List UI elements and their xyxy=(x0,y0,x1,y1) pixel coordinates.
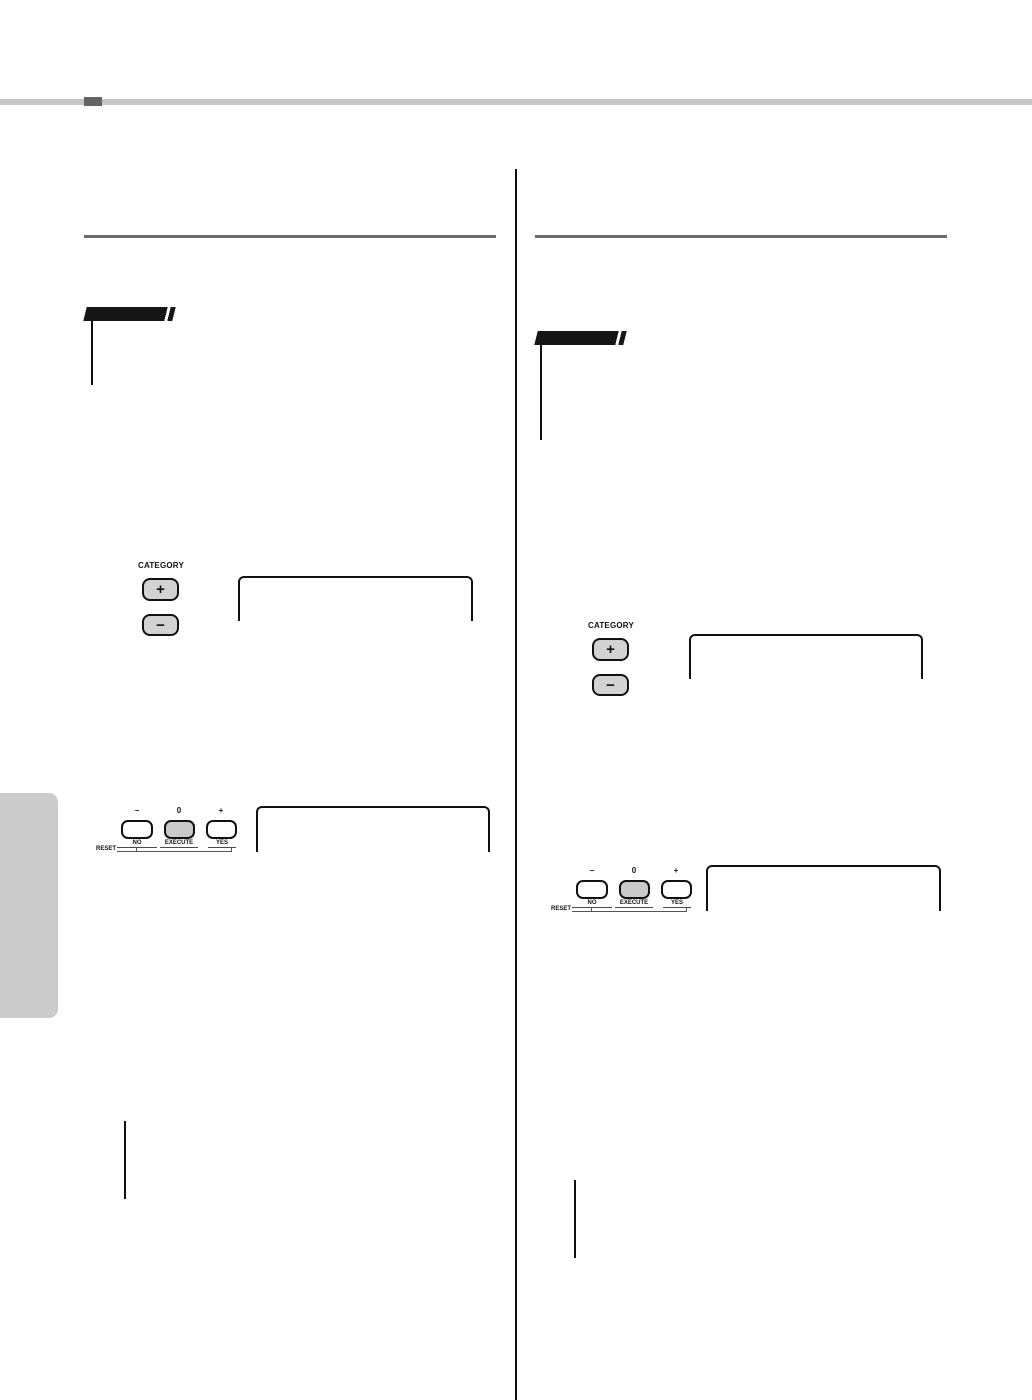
display-box xyxy=(689,634,923,679)
header-accent-square xyxy=(84,97,102,106)
section-rule xyxy=(84,235,496,238)
category-label: CATEGORY xyxy=(137,561,185,570)
yes-label: YES xyxy=(208,839,236,848)
note-banner xyxy=(534,331,626,345)
indent-bar xyxy=(124,1121,126,1199)
minus-label: − xyxy=(127,807,147,815)
minus-icon: − xyxy=(606,678,615,693)
note-stem-line xyxy=(91,321,93,385)
display-box xyxy=(238,576,473,621)
execute-button xyxy=(619,880,650,899)
value-button-group: − 0 + NO EXECUTE YES RESET xyxy=(551,866,701,914)
reset-connector-line xyxy=(572,911,687,912)
category-minus-button: − xyxy=(592,674,629,696)
category-label: CATEGORY xyxy=(587,621,635,630)
plus-label: + xyxy=(666,867,686,875)
category-minus-button: − xyxy=(142,614,179,636)
plus-icon: + xyxy=(156,582,165,597)
yes-button xyxy=(661,880,692,899)
reset-label: RESET xyxy=(96,846,118,852)
no-button xyxy=(121,820,153,839)
plus-label: + xyxy=(211,807,231,815)
reset-tick xyxy=(136,848,137,852)
reset-tick xyxy=(591,908,592,912)
minus-label: − xyxy=(582,867,602,875)
category-plus-button: + xyxy=(592,638,629,661)
reset-connector-line xyxy=(117,851,232,852)
minus-icon: − xyxy=(156,618,165,633)
yes-label: YES xyxy=(663,899,691,908)
display-box xyxy=(706,865,941,911)
column-divider xyxy=(515,169,517,1400)
no-label: NO xyxy=(572,899,612,908)
category-plus-button: + xyxy=(142,578,179,601)
category-button-group: CATEGORY + − xyxy=(587,620,697,702)
execute-label: EXECUTE xyxy=(160,839,198,848)
reset-tick xyxy=(231,848,232,852)
yes-button xyxy=(206,820,237,839)
no-label: NO xyxy=(117,839,157,848)
note-stem-line xyxy=(540,345,542,440)
plus-icon: + xyxy=(606,642,615,657)
page-header-bar xyxy=(0,99,1032,105)
section-rule xyxy=(535,235,947,238)
page-edge-tab xyxy=(0,793,58,1018)
note-banner xyxy=(83,307,175,321)
zero-label: 0 xyxy=(169,807,189,815)
indent-bar xyxy=(574,1180,576,1258)
display-box xyxy=(256,806,490,852)
no-button xyxy=(576,880,608,899)
zero-label: 0 xyxy=(624,867,644,875)
manual-page: CATEGORY + − − 0 + NO EXECUTE YES RESET … xyxy=(0,0,1032,1400)
value-button-group: − 0 + NO EXECUTE YES RESET xyxy=(96,806,246,854)
execute-label: EXECUTE xyxy=(615,899,653,908)
category-button-group: CATEGORY + − xyxy=(137,560,247,642)
reset-tick xyxy=(686,908,687,912)
reset-label: RESET xyxy=(551,906,573,912)
execute-button xyxy=(164,820,195,839)
